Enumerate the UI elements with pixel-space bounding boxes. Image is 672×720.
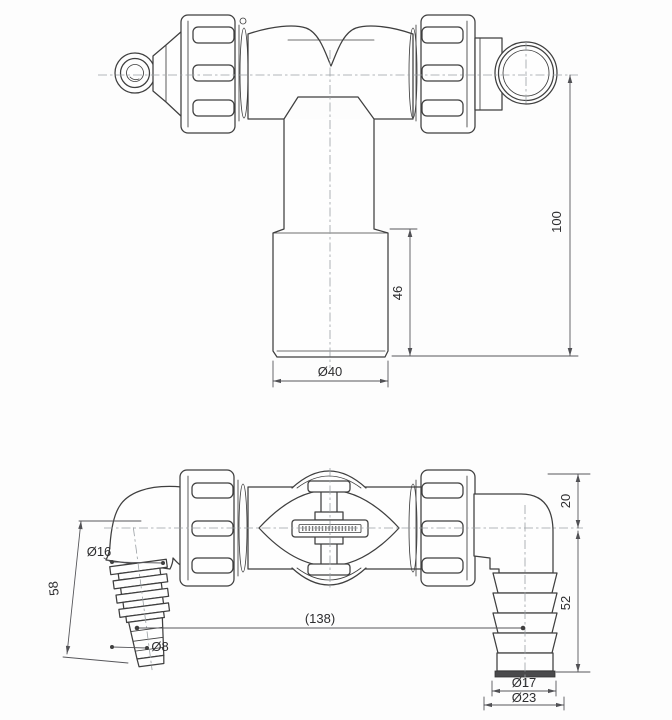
- top-view: 100 46 Ø40: [98, 15, 578, 387]
- bottom-outlet-elbow: [474, 494, 553, 573]
- dim-outlet-tip-label: Ø17: [512, 675, 537, 690]
- dim-inlet-barb-small-label: Ø8: [151, 639, 168, 654]
- top-right-opening: [475, 38, 557, 110]
- top-vertical-pipe: [273, 119, 388, 357]
- top-tee-body: [248, 26, 413, 119]
- dim-connection-distance: (138): [135, 611, 526, 630]
- dim-overall-height: 100: [392, 75, 578, 356]
- bottom-view: 20 52 (138) 58: [45, 468, 590, 710]
- dim-socket-height-label: 46: [390, 286, 405, 300]
- dim-socket-height: 46: [390, 229, 417, 356]
- dim-outlet-flare-label: Ø23: [512, 690, 537, 705]
- dim-outlet-flare: Ø23: [484, 690, 564, 710]
- dim-center-to-outlet-end: 52: [556, 531, 590, 672]
- top-left-nozzle: [115, 31, 182, 117]
- dim-socket-diameter: Ø40: [273, 361, 388, 387]
- dim-center-to-top-label: 20: [558, 494, 573, 508]
- tee-siphon-drawing: 100 46 Ø40: [0, 0, 672, 720]
- top-left-union-nut: [181, 15, 248, 133]
- dim-connection-distance-label: (138): [305, 611, 335, 626]
- dim-overall-height-label: 100: [549, 211, 564, 233]
- technical-drawing-page: 100 46 Ø40: [0, 0, 672, 720]
- dim-inlet-length-label: 58: [45, 580, 61, 596]
- dim-center-to-top: 20: [548, 474, 590, 528]
- dim-socket-diameter-label: Ø40: [318, 364, 343, 379]
- dim-inlet-barb-large-label: Ø16: [87, 544, 112, 559]
- dim-center-to-outlet-end-label: 52: [558, 596, 573, 610]
- top-right-union-nut: [409, 15, 475, 133]
